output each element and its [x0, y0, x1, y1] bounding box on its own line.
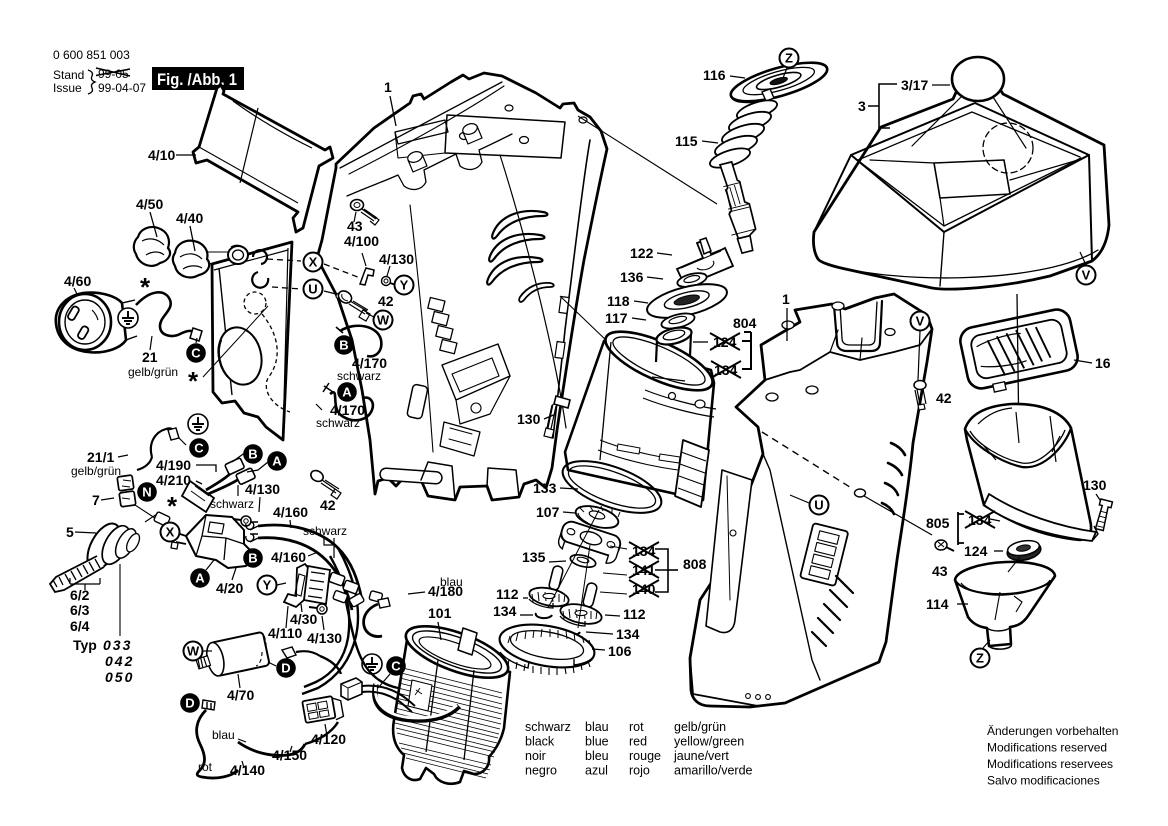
svg-text:yellow/green: yellow/green: [674, 735, 744, 749]
svg-text:B: B: [339, 338, 348, 353]
svg-text:U: U: [814, 498, 823, 513]
svg-text:4/70: 4/70: [227, 687, 254, 703]
svg-text:1: 1: [384, 79, 392, 95]
svg-text:Y: Y: [400, 278, 409, 293]
svg-text:808: 808: [683, 556, 707, 572]
svg-text:4/60: 4/60: [64, 273, 91, 289]
svg-text:4/50: 4/50: [136, 196, 163, 212]
svg-text:107: 107: [536, 504, 560, 520]
svg-text:4/20: 4/20: [216, 580, 243, 596]
svg-text:Issue: Issue: [53, 81, 82, 95]
svg-text:6/3: 6/3: [70, 602, 90, 618]
svg-text:B: B: [248, 447, 257, 462]
svg-text:134: 134: [616, 626, 640, 642]
svg-text:schwarz: schwarz: [337, 369, 381, 383]
svg-text:blue: blue: [585, 735, 609, 749]
svg-text:112: 112: [623, 606, 646, 622]
svg-text:114: 114: [926, 596, 949, 612]
svg-text:6/4: 6/4: [70, 618, 90, 634]
svg-text:805: 805: [926, 515, 950, 531]
svg-text:42: 42: [320, 497, 336, 513]
svg-text:C: C: [191, 346, 201, 361]
svg-text:noir: noir: [525, 749, 546, 763]
svg-text:schwarz: schwarz: [303, 524, 347, 538]
svg-text:4/190: 4/190: [156, 457, 191, 473]
svg-text:schwarz: schwarz: [316, 416, 360, 430]
svg-text:101: 101: [428, 605, 452, 621]
svg-text:42: 42: [936, 390, 952, 406]
svg-text:0 600 851 003: 0 600 851 003: [53, 48, 130, 62]
svg-text:azul: azul: [585, 764, 608, 778]
svg-text:4/10: 4/10: [148, 147, 175, 163]
svg-text:1: 1: [782, 291, 790, 307]
svg-text:Z: Z: [976, 651, 984, 666]
svg-text:4/130: 4/130: [307, 630, 342, 646]
svg-text:Modifications reservees: Modifications reservees: [987, 757, 1113, 771]
svg-text:Salvo modificaciones: Salvo modificaciones: [987, 774, 1100, 788]
svg-text:4/130: 4/130: [245, 481, 280, 497]
svg-text:gelb/grün: gelb/grün: [71, 464, 121, 478]
svg-text:4/180: 4/180: [428, 583, 463, 599]
svg-text:16: 16: [1095, 355, 1111, 371]
svg-text:106: 106: [608, 643, 632, 659]
svg-text:A: A: [272, 454, 282, 469]
svg-text:115: 115: [675, 133, 698, 149]
svg-text:134: 134: [493, 603, 517, 619]
svg-text:136: 136: [620, 269, 644, 285]
svg-text:V: V: [1082, 268, 1091, 283]
svg-text:21/1: 21/1: [87, 449, 114, 465]
svg-text:Y: Y: [263, 578, 272, 593]
svg-text:C: C: [391, 659, 401, 674]
svg-text:Modifications reserved: Modifications reserved: [987, 741, 1107, 755]
svg-text:4/160: 4/160: [271, 549, 306, 565]
svg-text:4/210: 4/210: [156, 472, 191, 488]
svg-text:122: 122: [630, 245, 654, 261]
svg-text:D: D: [185, 696, 194, 711]
svg-text:black: black: [525, 735, 555, 749]
svg-text:4/130: 4/130: [379, 251, 414, 267]
svg-text:A: A: [195, 571, 205, 586]
svg-text:99-04-07: 99-04-07: [98, 81, 146, 95]
svg-text:jaune/vert: jaune/vert: [673, 749, 729, 763]
svg-text:033: 033: [103, 637, 132, 653]
svg-text:4/110: 4/110: [268, 625, 302, 641]
svg-text:4/140: 4/140: [230, 762, 265, 778]
svg-text:X: X: [166, 525, 175, 540]
svg-text:gelb/grün: gelb/grün: [674, 720, 726, 734]
svg-text:Änderungen vorbehalten: Änderungen vorbehalten: [987, 724, 1118, 738]
svg-text:7: 7: [92, 492, 100, 508]
svg-text:bleu: bleu: [585, 749, 609, 763]
svg-text:5: 5: [66, 524, 74, 540]
svg-text:gelb/grün: gelb/grün: [128, 365, 178, 379]
svg-text:4/160: 4/160: [273, 504, 308, 520]
svg-text:130: 130: [1083, 477, 1107, 493]
svg-text:D: D: [281, 661, 290, 676]
svg-text:amarillo/verde: amarillo/verde: [674, 764, 753, 778]
svg-text:117: 117: [605, 310, 628, 326]
svg-text:135: 135: [522, 549, 546, 565]
svg-text:schwarz: schwarz: [525, 720, 571, 734]
svg-text:43: 43: [932, 563, 948, 579]
svg-text:116: 116: [703, 67, 726, 83]
svg-text:042: 042: [105, 653, 134, 669]
svg-text:W: W: [187, 644, 200, 659]
svg-text:W: W: [377, 313, 390, 328]
svg-text:6/2: 6/2: [70, 587, 90, 603]
svg-text:Typ: Typ: [73, 637, 97, 653]
svg-text:Fig. /Abb. 1: Fig. /Abb. 1: [157, 70, 237, 89]
svg-text:rot: rot: [198, 760, 213, 774]
svg-text:4/100: 4/100: [344, 233, 379, 249]
svg-text:3: 3: [858, 98, 866, 114]
svg-text:4/150: 4/150: [272, 747, 307, 763]
svg-text:Stand: Stand: [53, 68, 84, 82]
svg-text:21: 21: [142, 349, 158, 365]
svg-text:X: X: [309, 255, 318, 270]
svg-text:050: 050: [105, 669, 134, 685]
svg-text:A: A: [342, 385, 352, 400]
svg-text:124: 124: [964, 543, 988, 559]
svg-text:rojo: rojo: [629, 764, 650, 778]
svg-text:118: 118: [607, 293, 630, 309]
svg-text:133: 133: [533, 480, 557, 496]
svg-text:Z: Z: [785, 51, 793, 66]
svg-text:rot: rot: [629, 720, 644, 734]
svg-text:U: U: [308, 282, 317, 297]
svg-text:4/40: 4/40: [176, 210, 203, 226]
svg-text:C: C: [194, 441, 204, 456]
svg-text:red: red: [629, 735, 647, 749]
svg-text:schwarz: schwarz: [210, 497, 254, 511]
svg-text:N: N: [142, 485, 151, 500]
svg-text:*: *: [188, 366, 199, 396]
svg-text:130: 130: [517, 411, 541, 427]
svg-text:blau: blau: [585, 720, 609, 734]
svg-text:112: 112: [496, 586, 519, 602]
svg-text:blau: blau: [212, 728, 235, 742]
svg-text:804: 804: [733, 315, 757, 331]
svg-text:V: V: [916, 314, 925, 329]
svg-text:3/17: 3/17: [901, 77, 928, 93]
svg-text:42: 42: [378, 293, 394, 309]
svg-text:rouge: rouge: [629, 749, 661, 763]
svg-text:negro: negro: [525, 764, 557, 778]
svg-text:B: B: [248, 551, 257, 566]
